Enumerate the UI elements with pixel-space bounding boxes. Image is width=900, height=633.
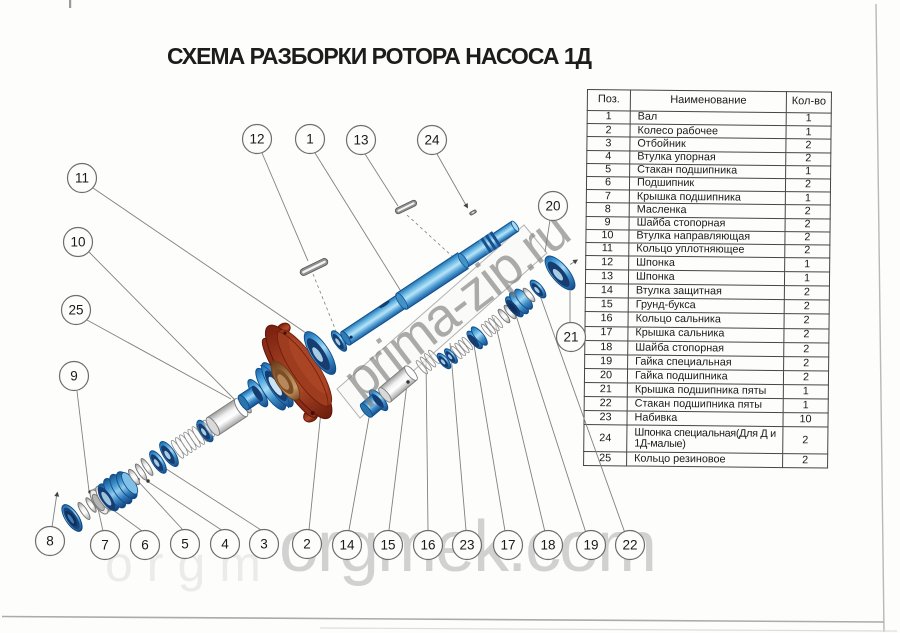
svg-text:8: 8 [46, 534, 54, 549]
svg-text:25: 25 [68, 303, 83, 318]
svg-text:3: 3 [260, 537, 268, 552]
svg-text:18: 18 [540, 538, 555, 553]
svg-text:9: 9 [70, 369, 78, 384]
svg-text:23: 23 [459, 538, 474, 553]
svg-text:6: 6 [141, 538, 149, 553]
svg-text:2: 2 [303, 537, 311, 552]
svg-text:13: 13 [353, 133, 368, 148]
svg-text:22: 22 [622, 538, 637, 553]
svg-text:1: 1 [306, 132, 314, 147]
svg-text:5: 5 [181, 537, 189, 552]
svg-text:12: 12 [249, 132, 264, 147]
svg-text:10: 10 [70, 235, 85, 250]
svg-text:15: 15 [380, 538, 395, 553]
svg-text:19: 19 [583, 538, 598, 553]
svg-text:14: 14 [339, 538, 355, 553]
svg-text:21: 21 [563, 330, 578, 345]
svg-text:16: 16 [420, 538, 435, 553]
svg-text:7: 7 [101, 538, 109, 553]
svg-text:17: 17 [500, 538, 515, 553]
svg-text:prima-zip.ru: prima-zip.ru [332, 200, 580, 410]
svg-text:20: 20 [545, 199, 560, 214]
svg-text:24: 24 [424, 133, 440, 148]
svg-text:11: 11 [75, 171, 89, 186]
svg-text:4: 4 [221, 537, 229, 552]
